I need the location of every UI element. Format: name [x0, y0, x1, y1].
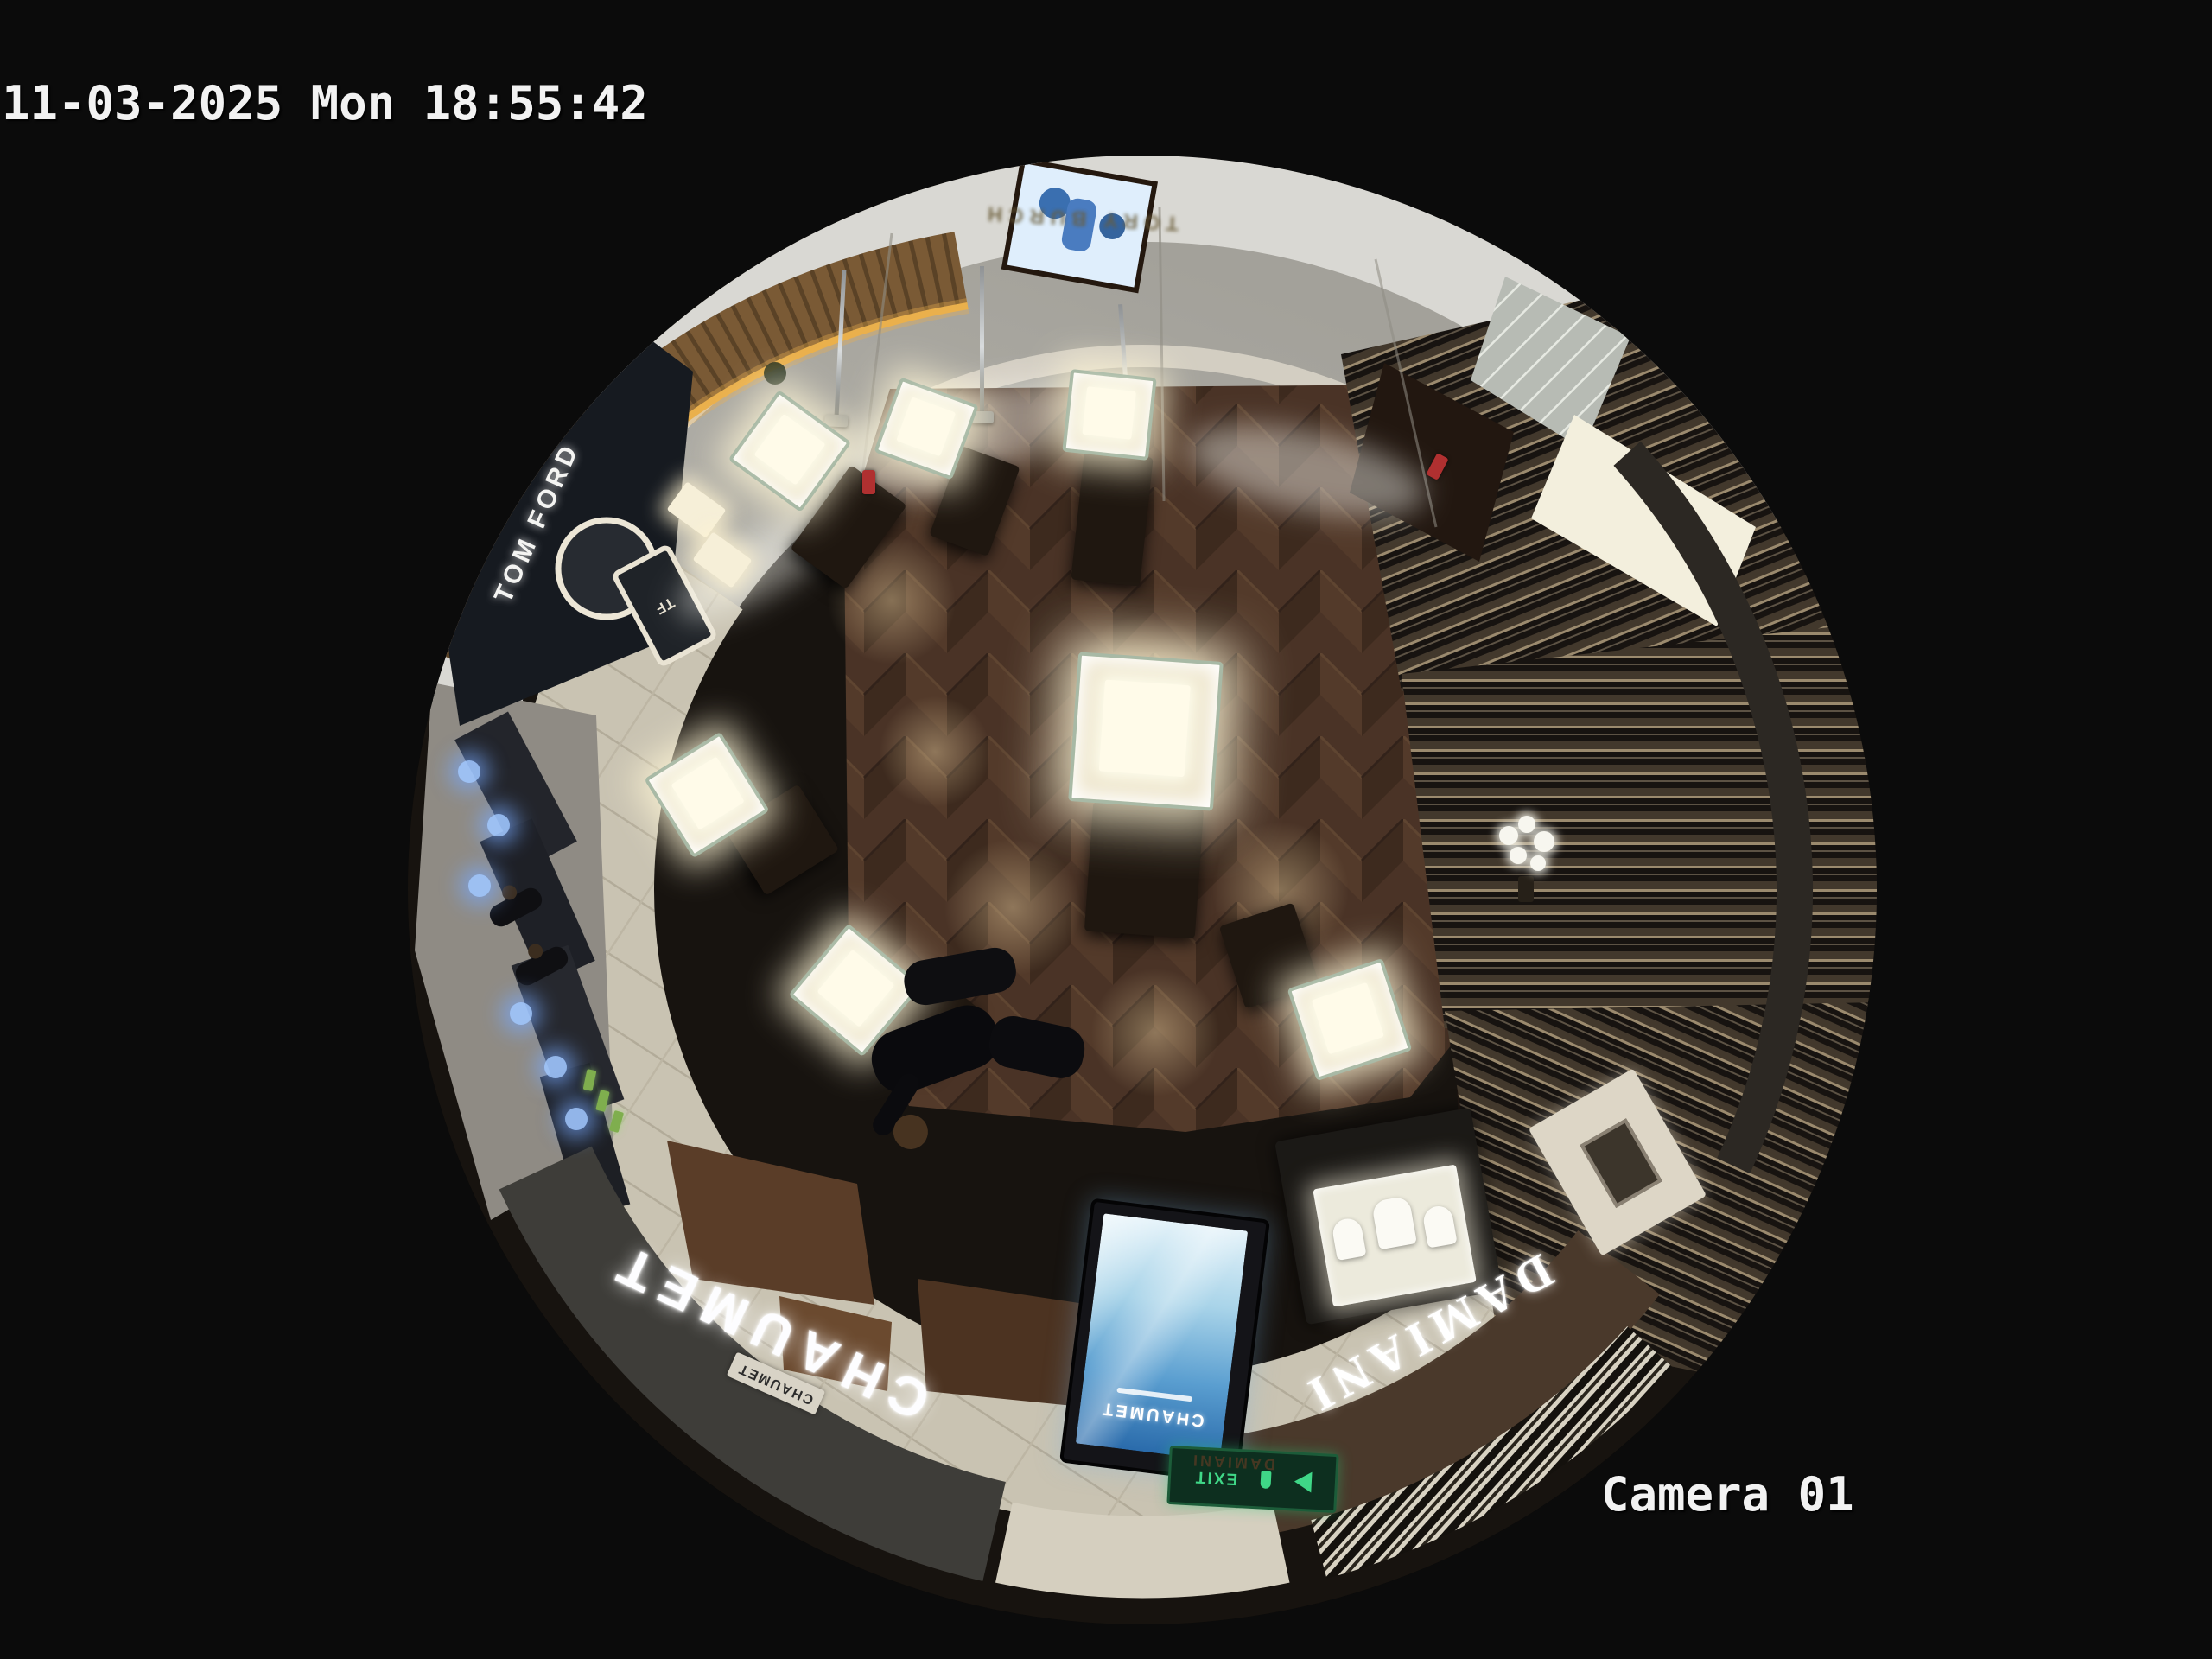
exit-arrow-icon — [1294, 1471, 1312, 1493]
display-pedestal — [1071, 450, 1153, 587]
security-gate — [980, 266, 984, 413]
flower — [1530, 855, 1546, 871]
ad-caption-line — [1116, 1388, 1192, 1402]
fisheye-view: CHAUMET EXIT CHAUMET CHAUMET DAMIANI DAM… — [408, 156, 1877, 1624]
fire-extinguisher — [862, 470, 875, 494]
flower — [1518, 816, 1535, 833]
jewellery-bust — [1331, 1217, 1366, 1261]
floor-light-pool — [879, 696, 991, 808]
counter-glow — [510, 1002, 532, 1025]
vase — [1518, 876, 1534, 902]
running-man-icon — [1261, 1471, 1272, 1489]
digital-ad-screen: CHAUMET — [1059, 1198, 1270, 1484]
flower-bouquet — [1484, 810, 1570, 906]
counter-glow — [458, 760, 480, 783]
figure-torso — [863, 997, 1007, 1102]
camera-name-overlay: Camera 01 — [1601, 1467, 1854, 1522]
ad-screen-content: CHAUMET — [1076, 1213, 1248, 1460]
framed-artwork — [1580, 1118, 1662, 1208]
counter-glow — [565, 1108, 588, 1130]
counter-glow — [544, 1056, 567, 1078]
floor-light-pool — [1090, 968, 1220, 1097]
display-case — [1062, 369, 1156, 461]
display-pedestal — [1084, 802, 1204, 939]
counter-glow — [468, 874, 491, 897]
ad-brand-text: CHAUMET — [1079, 1395, 1226, 1433]
counter-glow — [487, 814, 510, 836]
cctv-frame: CHAUMET EXIT CHAUMET CHAUMET DAMIANI DAM… — [0, 0, 2212, 1659]
timestamp-overlay: 11-03-2025 Mon 18:55:42 — [2, 76, 648, 130]
center-display-case — [1068, 652, 1224, 810]
flower — [1534, 831, 1554, 852]
flower — [1499, 826, 1518, 845]
bust-case-interior — [1313, 1165, 1476, 1307]
jewellery-bust — [1421, 1204, 1457, 1248]
jewellery-bust — [1371, 1196, 1417, 1250]
flower — [1510, 847, 1527, 864]
desk-plant — [764, 362, 786, 385]
